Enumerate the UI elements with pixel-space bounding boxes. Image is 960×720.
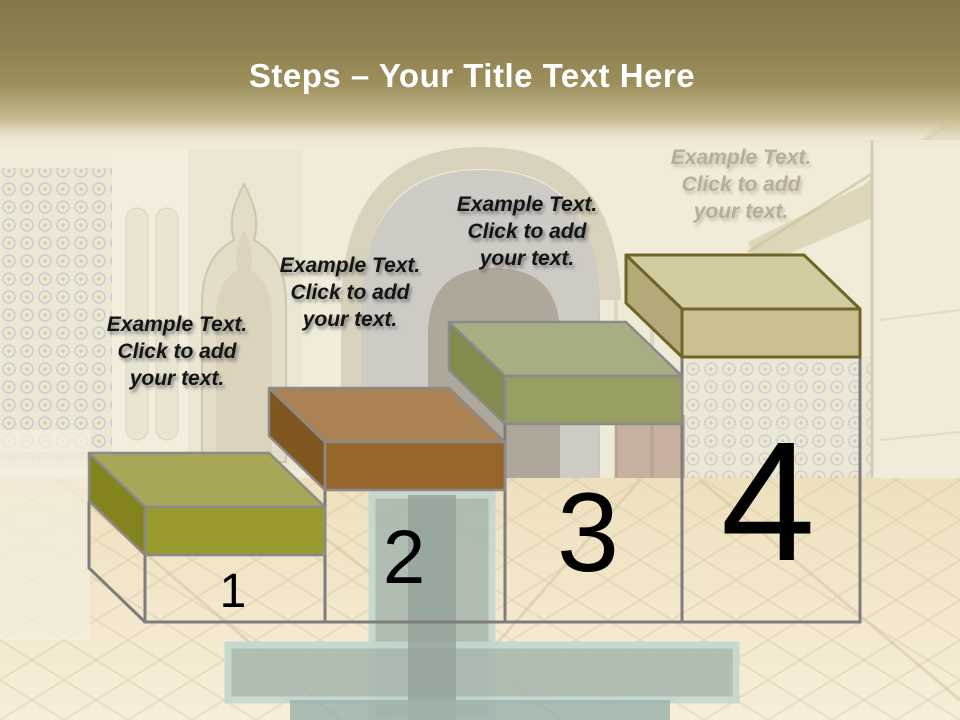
step-4-number[interactable]: 4 bbox=[721, 417, 816, 587]
step-3-label[interactable]: Example Text. Click to add your text. bbox=[457, 191, 597, 272]
step-2-number[interactable]: 2 bbox=[383, 520, 425, 596]
step-1-box-front-face bbox=[145, 507, 325, 555]
slide: Steps – Your Title Text Here bbox=[0, 0, 960, 720]
step-2-box-front-face bbox=[325, 442, 505, 490]
step-4-box[interactable] bbox=[626, 255, 860, 357]
step-3-box[interactable] bbox=[449, 322, 682, 424]
step-4-label[interactable]: Example Text. Click to add your text. bbox=[671, 144, 811, 225]
step-1-number[interactable]: 1 bbox=[220, 568, 247, 616]
step-4-box-front-face bbox=[682, 309, 860, 357]
step-1-label[interactable]: Example Text. Click to add your text. bbox=[107, 311, 247, 392]
step-2-label[interactable]: Example Text. Click to add your text. bbox=[280, 252, 420, 333]
step-1-box[interactable] bbox=[89, 453, 325, 555]
step-2-box[interactable] bbox=[269, 388, 505, 490]
step-3-box-front-face bbox=[505, 376, 682, 424]
step-3-number[interactable]: 3 bbox=[557, 477, 619, 589]
